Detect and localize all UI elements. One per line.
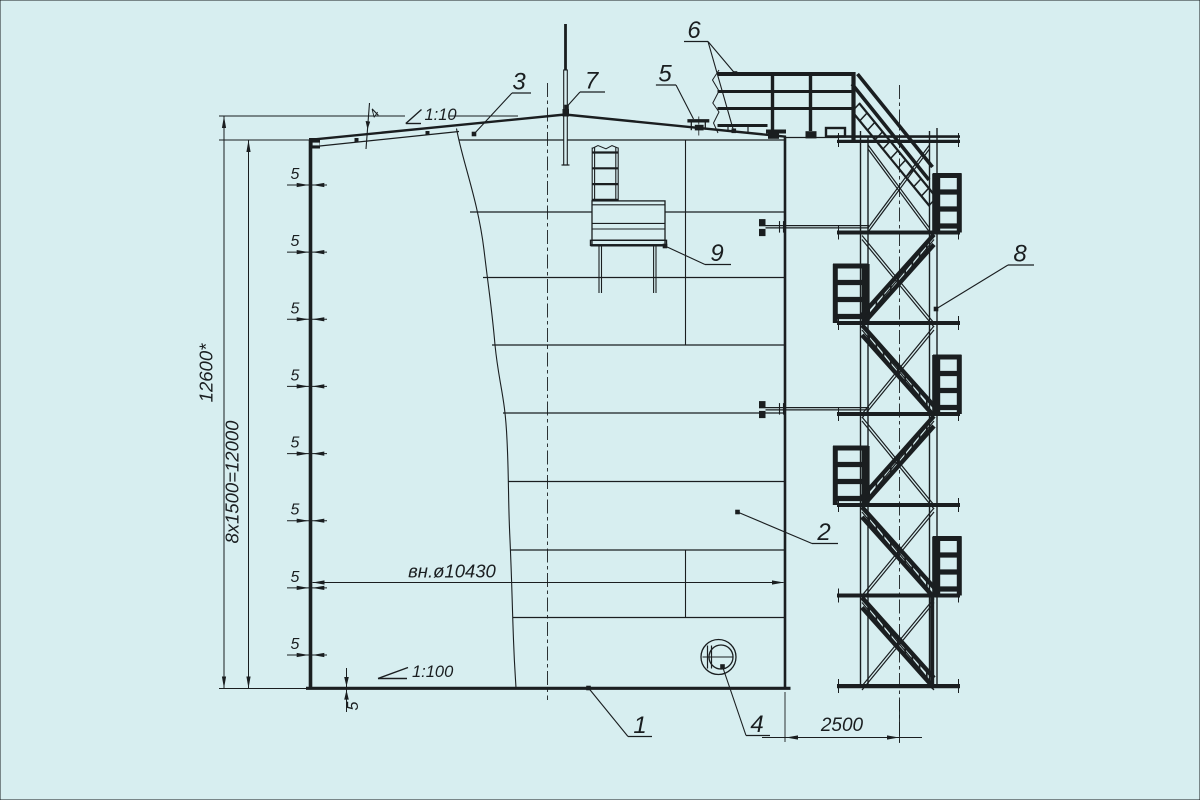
svg-text:5: 5: [291, 502, 300, 519]
svg-text:7: 7: [585, 68, 600, 95]
svg-text:1:100: 1:100: [412, 663, 454, 681]
svg-text:2500: 2500: [820, 715, 864, 736]
svg-text:5: 5: [291, 569, 300, 586]
svg-text:8x1500=12000: 8x1500=12000: [222, 420, 243, 544]
svg-text:8: 8: [1013, 241, 1027, 268]
svg-text:9: 9: [710, 240, 723, 267]
svg-text:6: 6: [687, 17, 701, 44]
svg-text:5: 5: [345, 701, 362, 710]
svg-text:4: 4: [750, 711, 763, 738]
svg-text:1: 1: [633, 712, 646, 739]
svg-text:5: 5: [291, 636, 300, 653]
svg-text:2: 2: [816, 519, 830, 546]
svg-text:5: 5: [291, 166, 300, 183]
svg-text:1:10: 1:10: [425, 106, 458, 124]
svg-text:3: 3: [512, 69, 526, 96]
svg-text:12600*: 12600*: [196, 343, 217, 402]
svg-text:вн.ø10430: вн.ø10430: [408, 561, 496, 582]
svg-text:5: 5: [291, 300, 300, 317]
svg-text:5: 5: [291, 435, 300, 452]
svg-text:5: 5: [658, 61, 672, 88]
svg-text:5: 5: [291, 367, 300, 384]
svg-text:5: 5: [291, 233, 300, 250]
